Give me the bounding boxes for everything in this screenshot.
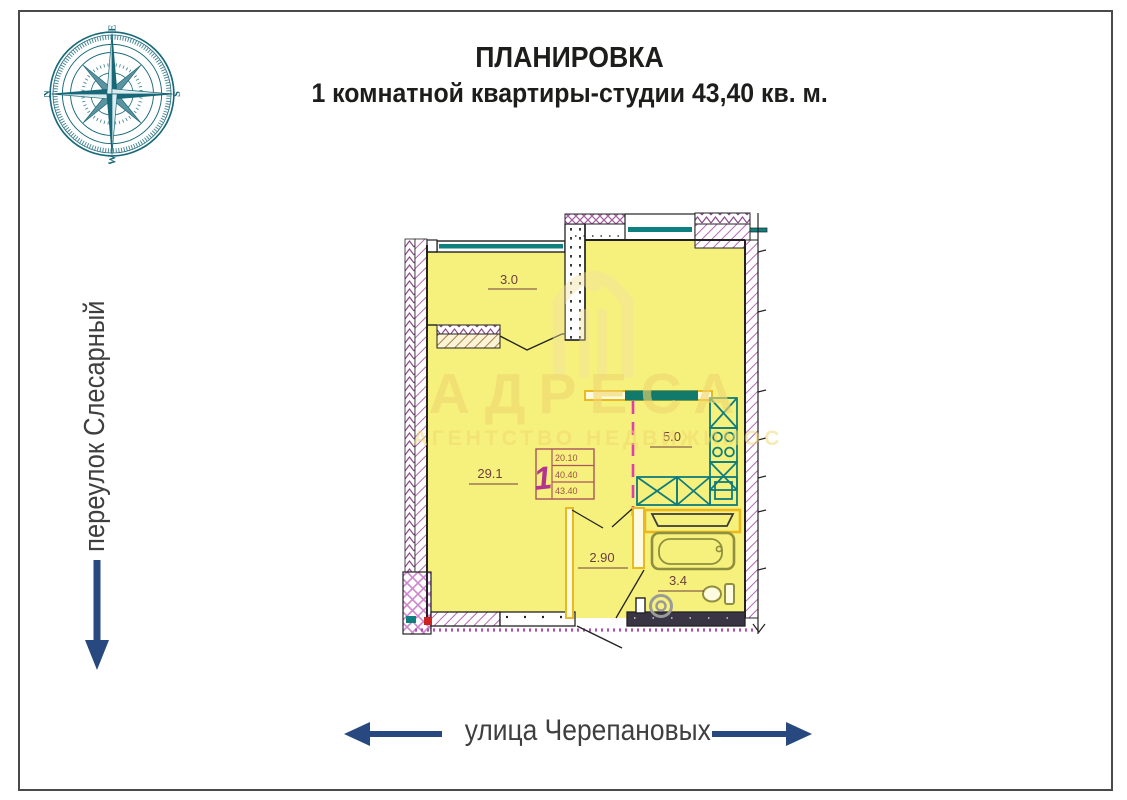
left-arrow-icon [344, 722, 442, 746]
stamp-row3: 43.40 [555, 486, 578, 496]
utility-mark-red [424, 617, 432, 625]
area-living: 29.1 [477, 466, 502, 481]
stamp-row1: 20.10 [555, 453, 578, 463]
title-line1: ПЛАНИРОВКА [476, 42, 665, 75]
right-arrow-icon [712, 722, 812, 746]
flyer-page: N E S W ПЛАНИРОВКА 1 комнатной квартиры-… [0, 0, 1127, 800]
compass-south-label: S [172, 91, 180, 97]
compass-east-label: E [107, 24, 118, 31]
dimension-arrow [753, 624, 765, 632]
street-label-bottom: улица Черепановых [448, 714, 708, 748]
street-label-left: переулок Слесарный [79, 276, 115, 576]
floor-plan: 3.0 29.1 5.0 2.90 3.4 1 20.10 40.40 43.4… [398, 203, 770, 653]
room-fills [427, 240, 745, 618]
page-title: ПЛАНИРОВКА 1 комнатной квартиры-студии 4… [255, 42, 885, 109]
toilet-tank [725, 584, 734, 604]
entry-door-swing [577, 626, 622, 648]
compass-north-label: N [44, 90, 52, 98]
door-jamb [636, 598, 645, 613]
area-hall: 2.90 [589, 550, 614, 565]
utility-mark-teal [406, 616, 416, 623]
wall-right [745, 213, 766, 634]
street-left-text: переулок Слесарный [79, 300, 112, 551]
area-balcony: 3.0 [500, 272, 518, 287]
stamp-rooms: 1 [532, 459, 553, 497]
partition-kitchen [585, 391, 712, 401]
compass-rose-icon: N E S W [44, 24, 180, 169]
area-kitchen: 5.0 [663, 429, 681, 444]
down-arrow-icon [84, 560, 110, 672]
title-line2: 1 комнатной квартиры-студии 43,40 кв. м. [312, 78, 828, 109]
wall-column [565, 224, 585, 340]
stamp-row2: 40.40 [555, 470, 578, 480]
balcony-window [427, 240, 565, 252]
compass-west-label: W [107, 154, 118, 164]
window-main [628, 227, 692, 232]
street-bottom-text: улица Черепановых [465, 714, 711, 748]
toilet-bowl [703, 587, 721, 602]
area-bathroom: 3.4 [669, 573, 687, 588]
